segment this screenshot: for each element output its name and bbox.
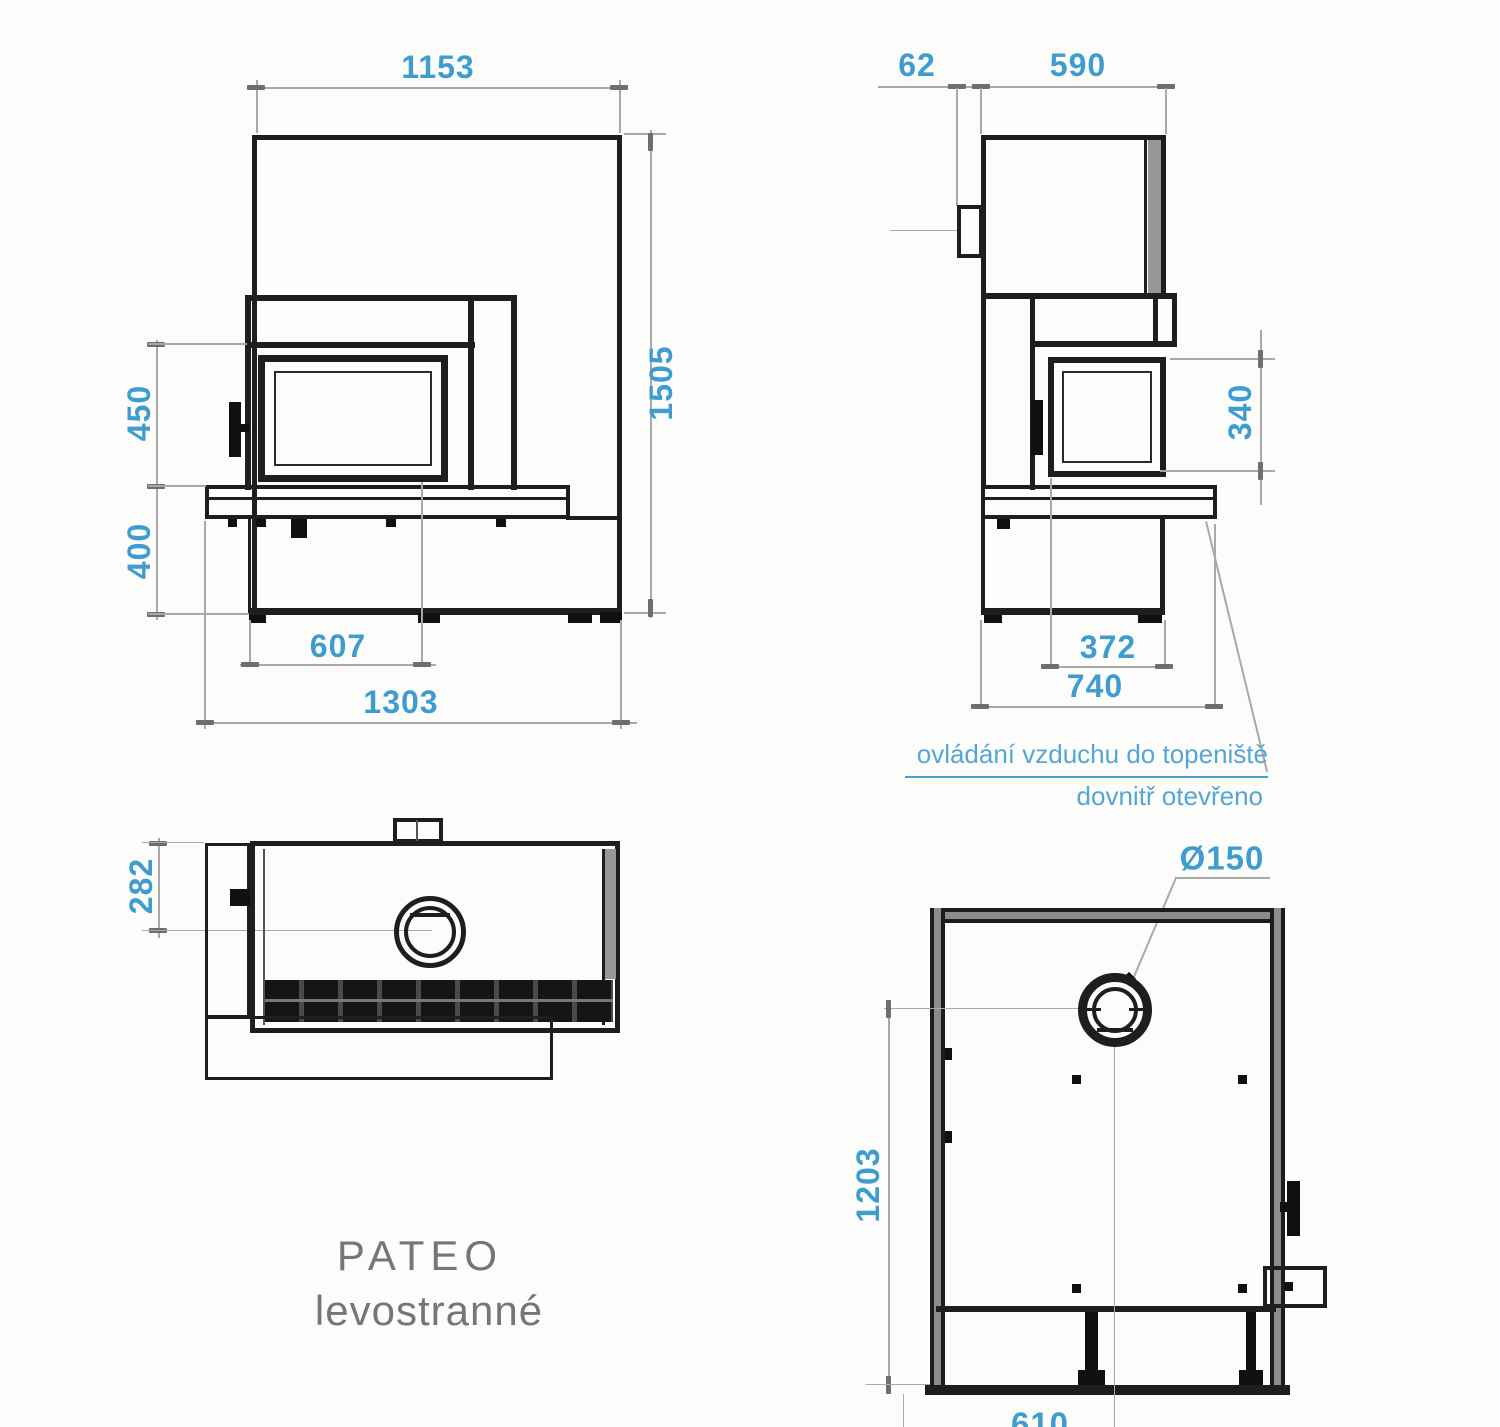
dimension-line <box>248 87 628 89</box>
top-rear-stub <box>393 818 443 843</box>
side-bench-slab <box>981 485 1217 519</box>
top-left-wing <box>205 843 250 1018</box>
bench-tab <box>291 519 307 538</box>
dim-tick <box>886 1000 891 1018</box>
dim-tick <box>612 720 630 725</box>
plan-top-wall <box>930 908 1285 923</box>
plinth-foot <box>568 613 592 623</box>
firebox-right-column-outer <box>511 295 517 490</box>
air-control-lever <box>1263 1266 1327 1308</box>
dimension-line <box>240 664 436 666</box>
dim-tick <box>1258 350 1263 368</box>
top-handle-tab <box>230 889 250 906</box>
side-plinth-left <box>981 519 985 610</box>
dim-label-total-width: 1303 <box>363 686 438 718</box>
firebox-right-column-inner <box>468 295 474 490</box>
bench-tab <box>496 519 506 527</box>
door-glass <box>274 371 432 466</box>
side-step-line <box>981 293 1177 299</box>
top-rear-stub-divider <box>416 820 418 841</box>
dimension-line <box>888 1002 890 1394</box>
bench-tab <box>256 519 266 527</box>
extension-line <box>980 620 982 708</box>
leader-underline <box>1175 877 1270 879</box>
plan-flue-centermark <box>1129 1008 1147 1011</box>
plan-bottom-line <box>925 1385 1290 1395</box>
plan-flue-chord <box>1097 1028 1133 1032</box>
air-control-knob <box>1284 1282 1293 1291</box>
dimension-line <box>197 722 637 724</box>
extension-line <box>148 485 206 487</box>
leader-line <box>1133 877 1177 977</box>
dim-tick <box>610 85 628 90</box>
top-grate-slit <box>265 999 613 1002</box>
plan-left-wall <box>930 908 945 1394</box>
extension-line <box>1114 1047 1115 1427</box>
flue-connector <box>957 205 983 258</box>
dimension-line <box>878 86 1175 88</box>
connector-centerline <box>890 230 957 231</box>
annotation-open-inward: dovnitř otevřeno <box>1005 782 1263 812</box>
dim-tick <box>1258 462 1263 480</box>
side-hood-wall-shade <box>1148 140 1161 295</box>
dim-label-body-depth: 590 <box>1050 49 1106 81</box>
dim-tick <box>1155 664 1173 669</box>
door-handle <box>229 402 241 457</box>
dim-label-depth-to-flue: 1203 <box>852 1147 884 1222</box>
fixing-dot <box>1238 1075 1247 1084</box>
dim-tick <box>196 720 214 725</box>
extension-line <box>980 88 982 134</box>
product-title: PATEO <box>337 1235 503 1277</box>
annotation-air-control: ovládání vzduchu do topeniště <box>905 740 1268 778</box>
mantel-bottom-line <box>245 342 475 348</box>
top-right-wall-shade <box>605 849 616 979</box>
dim-label-side-window-height: 340 <box>1224 384 1256 440</box>
dim-label-width-top: 1153 <box>401 51 474 83</box>
fixing-dot <box>1072 1284 1081 1293</box>
extension-line <box>1165 88 1167 134</box>
dim-label-width-to-flue: 610 <box>1011 1408 1069 1427</box>
dim-tick <box>648 599 653 617</box>
extension-line <box>148 343 247 345</box>
side-hood-outline <box>981 135 1166 298</box>
fixing-dot <box>1238 1284 1247 1293</box>
extension-line <box>142 842 204 843</box>
dim-label-connector-depth: 62 <box>898 49 936 81</box>
dim-tick <box>247 85 265 90</box>
side-bench-mid-line <box>985 497 1213 500</box>
plinth-left-edge <box>248 519 251 614</box>
dim-tick <box>886 1376 891 1394</box>
dim-tick <box>971 704 989 709</box>
extension-line <box>1050 478 1052 668</box>
extension-line <box>866 1384 930 1385</box>
side-left-edge <box>981 298 986 488</box>
extension-line <box>624 612 666 614</box>
side-plinth-foot <box>1138 615 1162 623</box>
plan-chamber-bottom <box>936 1306 1276 1312</box>
extension-line <box>624 133 666 135</box>
plan-door-handle-stem <box>1280 1202 1288 1212</box>
dim-label-plinth-height: 400 <box>123 523 155 579</box>
dim-tick <box>413 662 431 667</box>
door-handle-stem <box>241 424 249 432</box>
dim-label-opening-height: 450 <box>123 385 155 441</box>
dim-label-total-depth: 740 <box>1067 670 1123 702</box>
extension-line <box>1214 524 1216 708</box>
bench-slab <box>205 485 570 519</box>
dim-tick <box>1041 664 1059 669</box>
plinth-foot <box>600 612 622 623</box>
side-plinth-foot <box>984 615 1002 623</box>
plan-right-wall <box>1270 908 1285 1394</box>
side-plinth-right <box>1160 519 1165 610</box>
bench-tab <box>386 519 396 527</box>
dim-tick <box>1205 704 1223 709</box>
extension-line <box>249 620 251 666</box>
side-band-divider <box>1153 295 1158 345</box>
dim-tick <box>241 662 259 667</box>
fixing-dot <box>1072 1075 1081 1084</box>
side-front-edge <box>1030 298 1035 490</box>
technical-drawing-pateo: 1153 1505 450 400 607 1303 <box>0 0 1500 1427</box>
side-hood-inner-wall <box>1144 140 1147 295</box>
extension-line <box>903 1394 904 1427</box>
plan-flue-centermark <box>1083 1008 1101 1011</box>
extension-line <box>204 521 206 729</box>
dim-label-opening-width: 607 <box>310 630 366 662</box>
bench-tab <box>228 519 237 527</box>
top-flue-chord <box>410 913 450 917</box>
extension-line <box>620 620 622 729</box>
wall-stud <box>945 1131 952 1143</box>
extension-line <box>421 482 423 666</box>
side-band-right-edge <box>1172 293 1177 347</box>
bench-right-ledge <box>566 516 622 520</box>
mantel-top-line <box>245 295 517 301</box>
dim-label-flue-offset: 282 <box>125 858 157 914</box>
dim-label-side-window-width: 372 <box>1080 631 1136 663</box>
dim-label-flue-diameter: Ø150 <box>1180 842 1265 875</box>
product-variant: levostranné <box>315 1290 543 1332</box>
extension-line <box>956 88 958 206</box>
side-plinth-bottom <box>981 608 1165 615</box>
plinth-foot <box>249 615 266 623</box>
dimension-line <box>974 706 1222 708</box>
top-bench-outline <box>205 1016 553 1080</box>
side-bench-tab <box>997 519 1010 529</box>
side-door-handle <box>1031 400 1043 455</box>
wall-stud <box>945 1048 952 1060</box>
extension-line <box>884 1008 1078 1009</box>
plan-door-handle <box>1287 1181 1300 1236</box>
extension-line <box>1164 620 1166 668</box>
bench-mid-line <box>209 497 566 500</box>
dim-label-total-height: 1505 <box>645 345 677 420</box>
extension-line <box>148 613 249 615</box>
side-door-glass <box>1062 371 1152 463</box>
firebox-left-edge <box>245 295 251 490</box>
dim-tick <box>648 133 653 151</box>
